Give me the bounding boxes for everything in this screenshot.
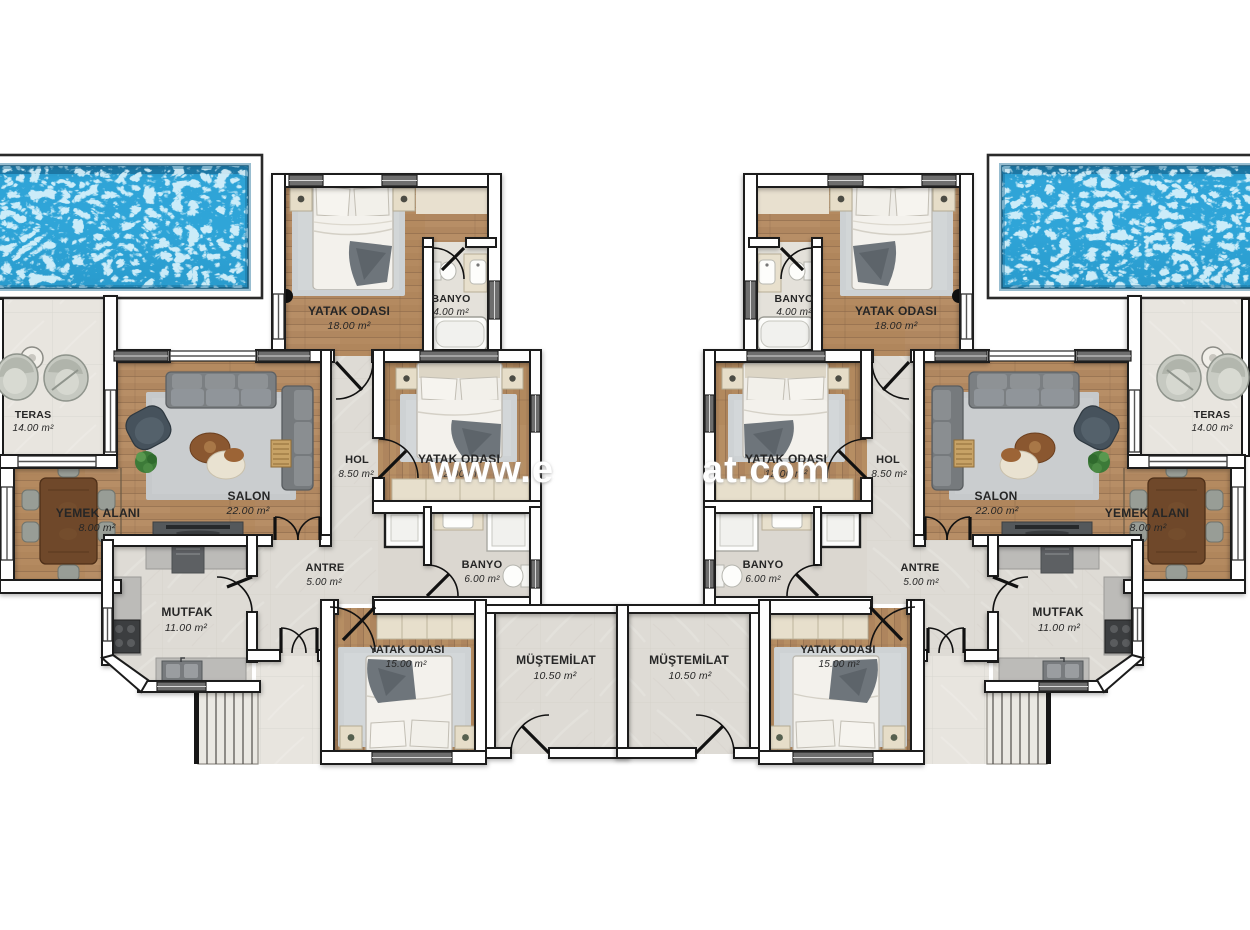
svg-text:YEMEK ALANI: YEMEK ALANI [1105,506,1189,520]
svg-text:BANYO: BANYO [775,293,814,305]
svg-text:at.com: at.com [702,449,830,491]
svg-text:ANTRE: ANTRE [901,562,940,574]
svg-text:15.00 m²: 15.00 m² [385,659,427,670]
svg-text:8.50 m²: 8.50 m² [338,469,374,480]
svg-text:TERAS: TERAS [15,409,52,421]
svg-text:HOL: HOL [876,454,900,466]
svg-text:BANYO: BANYO [743,559,784,571]
svg-text:8.00 m²: 8.00 m² [79,522,116,534]
svg-text:15.00 m²: 15.00 m² [818,659,860,670]
svg-text:YATAK ODASI: YATAK ODASI [369,644,444,656]
svg-text:YATAK ODASI: YATAK ODASI [855,304,937,318]
svg-text:BANYO: BANYO [462,559,503,571]
svg-text:14.00 m²: 14.00 m² [1191,423,1233,434]
svg-text:6.00 m²: 6.00 m² [745,574,781,585]
svg-text:www.e: www.e [429,449,554,491]
svg-text:MUTFAK: MUTFAK [1032,605,1083,619]
svg-text:YATAK ODASI: YATAK ODASI [308,304,390,318]
svg-text:22.00 m²: 22.00 m² [974,505,1018,517]
svg-text:TERAS: TERAS [1194,409,1231,421]
svg-text:SALON: SALON [975,489,1018,503]
svg-text:18.00 m²: 18.00 m² [327,320,370,332]
svg-text:4.00 m²: 4.00 m² [776,307,812,318]
svg-text:10.50 m²: 10.50 m² [668,670,711,682]
svg-text:11.00 m²: 11.00 m² [165,622,208,634]
svg-text:8.50 m²: 8.50 m² [871,469,907,480]
svg-text:8.00 m²: 8.00 m² [1130,522,1167,534]
svg-text:MUTFAK: MUTFAK [161,605,212,619]
svg-text:HOL: HOL [345,454,369,466]
svg-text:MÜŞTEMİLAT: MÜŞTEMİLAT [516,652,596,667]
svg-text:4.00 m²: 4.00 m² [433,307,469,318]
svg-text:YATAK ODASI: YATAK ODASI [800,644,875,656]
svg-text:6.00 m²: 6.00 m² [464,574,500,585]
svg-text:22.00 m²: 22.00 m² [225,505,269,517]
svg-text:5.00 m²: 5.00 m² [306,577,342,588]
svg-text:YEMEK ALANI: YEMEK ALANI [56,506,140,520]
svg-text:10.50 m²: 10.50 m² [533,670,576,682]
svg-text:SALON: SALON [228,489,271,503]
svg-text:MÜŞTEMİLAT: MÜŞTEMİLAT [649,652,729,667]
svg-text:BANYO: BANYO [432,293,471,305]
svg-text:ANTRE: ANTRE [306,562,345,574]
svg-text:18.00 m²: 18.00 m² [874,320,917,332]
svg-text:11.00 m²: 11.00 m² [1038,622,1081,634]
svg-text:14.00 m²: 14.00 m² [12,423,54,434]
svg-text:5.00 m²: 5.00 m² [903,577,939,588]
